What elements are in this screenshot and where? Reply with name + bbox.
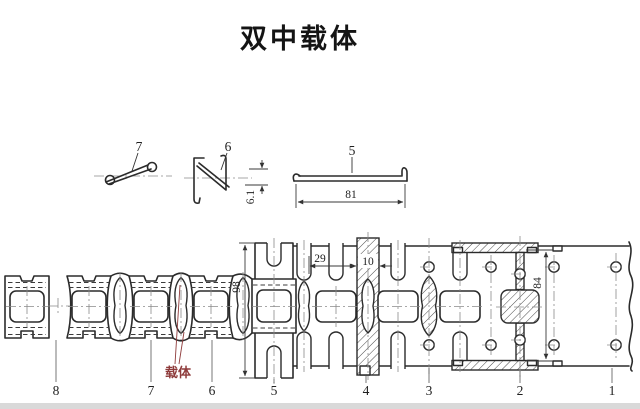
station-label-5: 5 bbox=[271, 383, 278, 398]
flange-foot bbox=[454, 361, 463, 366]
strip-layout: 29 10 98 84 载体 8 7 bbox=[5, 232, 633, 398]
station-label-8: 8 bbox=[53, 383, 60, 398]
carrier-label: 载体 bbox=[165, 365, 192, 380]
station-label-3: 3 bbox=[426, 383, 433, 398]
break-line bbox=[629, 242, 633, 371]
station-label-7: 7 bbox=[148, 383, 155, 398]
lance-band-notch bbox=[360, 366, 370, 375]
profile-6-label: 6 bbox=[225, 139, 232, 154]
profile-7-web bbox=[106, 165, 148, 182]
station-label-6: 6 bbox=[209, 383, 216, 398]
carrier-web bbox=[298, 281, 309, 331]
profile-6-web-inner bbox=[199, 163, 229, 187]
profile-6-left-flange bbox=[194, 158, 204, 203]
profile-7-web-inner bbox=[109, 169, 151, 184]
profile-6: 6 6.1 bbox=[184, 139, 268, 204]
dim-10-value: 10 bbox=[362, 256, 374, 268]
dim-84-value: 84 bbox=[532, 277, 544, 289]
progressive-die-strip-diagram: 双中载体 7 6 6.1 5 bbox=[0, 0, 640, 409]
profile-5: 5 81 bbox=[293, 143, 407, 208]
diagram-canvas: 双中载体 7 6 6.1 5 bbox=[0, 0, 640, 409]
edge-notch bbox=[553, 246, 562, 251]
profile-7: 7 bbox=[94, 139, 172, 185]
station-label-1: 1 bbox=[609, 383, 616, 398]
station-label-4: 4 bbox=[363, 383, 370, 398]
profile-5-right-hook bbox=[402, 168, 407, 181]
profile-7-label: 7 bbox=[136, 139, 143, 154]
top-flange bbox=[452, 243, 538, 253]
profile-5-label: 5 bbox=[349, 143, 356, 158]
bottom-flange bbox=[452, 361, 538, 371]
edge-notch bbox=[553, 361, 562, 366]
dim-6-1-value: 6.1 bbox=[245, 190, 257, 205]
dim-81-value: 81 bbox=[345, 189, 357, 201]
profile-7-leader bbox=[132, 153, 138, 171]
dim-81: 81 bbox=[296, 184, 405, 208]
bottom-edge-bar bbox=[0, 403, 640, 409]
dim-6-1: 6.1 bbox=[245, 160, 268, 204]
flange-foot bbox=[454, 248, 463, 253]
page-title: 双中载体 bbox=[240, 24, 360, 54]
cutoff-centermark bbox=[48, 298, 70, 314]
dim-29-value: 29 bbox=[314, 253, 326, 265]
profile-5-left-hook bbox=[293, 174, 300, 181]
dim-98-value: 98 bbox=[231, 281, 243, 293]
dim-10: 10 bbox=[344, 254, 392, 268]
station-label-2: 2 bbox=[517, 383, 524, 398]
